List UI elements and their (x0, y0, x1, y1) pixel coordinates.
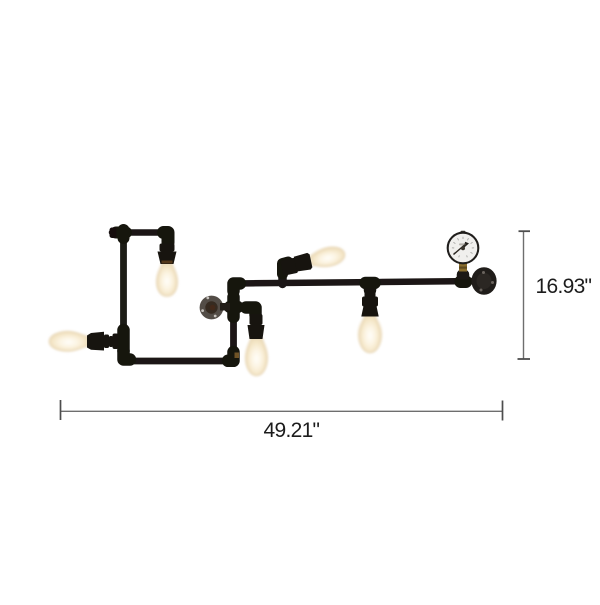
svg-text:16.93": 16.93" (536, 275, 592, 298)
svg-text:49.21": 49.21" (264, 419, 320, 442)
